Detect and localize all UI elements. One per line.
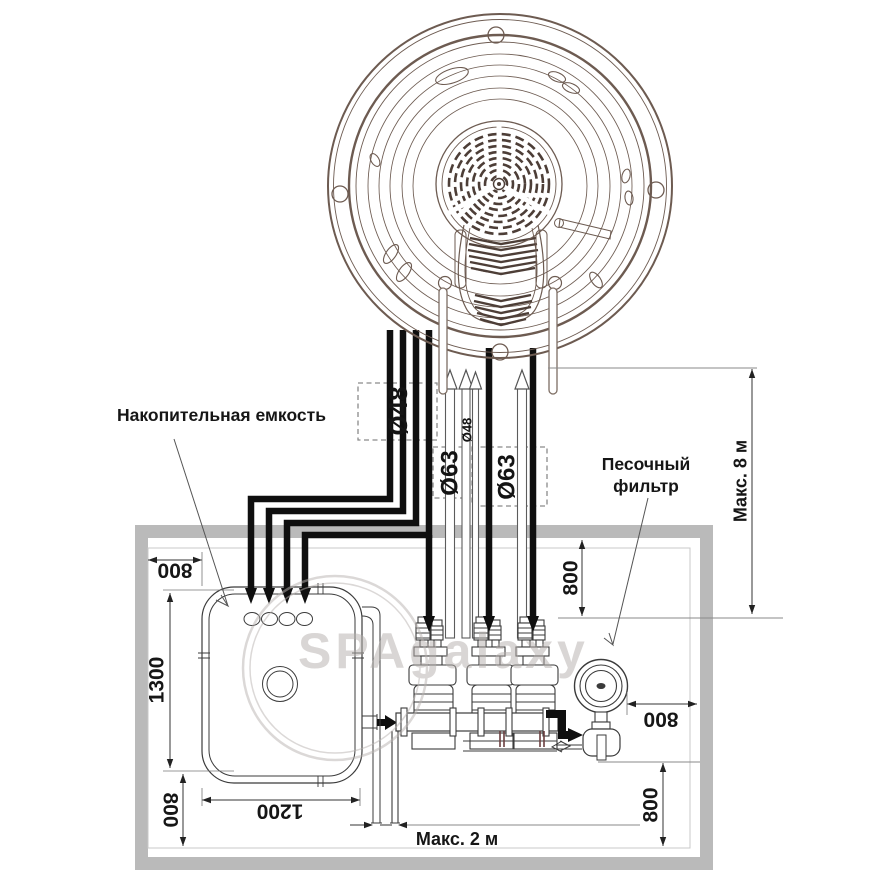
svg-text:1300: 1300 [145,657,168,704]
dim-wall-to-tank: 800 [148,552,202,586]
svg-text:800: 800 [559,560,582,595]
spa-skimmer-arm [559,219,611,239]
dim-max-8m: Макс. 8 м [730,369,755,614]
svg-text:800: 800 [159,792,182,827]
spa-top-view [328,14,672,360]
dim-tank-width: 1200 [202,788,360,823]
sand-filter-label-line1: Песочный [602,454,691,474]
pipe-label-d48: Ø48 [383,386,413,435]
storage-tank-label: Накопительная емкость [117,405,326,425]
leader-arrow [604,633,613,645]
pipe-label-d63-right: Ø63 [493,454,520,499]
pump-drain-pipe [390,731,400,823]
spa-drain-grate [436,121,562,247]
svg-text:1200: 1200 [257,800,304,823]
spa-footwell [439,225,562,325]
dim-filter-to-wall: 800 [627,692,697,731]
pipe-label-d48-small: Ø48 [460,418,475,443]
dim-filter-to-floor: 800 [639,763,666,846]
installation-diagram: SPAgalaxy Ø48 Ø48 Ø63 Ø63 800 1300 [0,0,881,881]
supply-pipes-spa-to-tank [251,330,429,589]
flow-arrow [568,728,583,742]
dim-tank-to-floor: 800 [159,774,187,846]
spa-connector-tubes [439,288,557,394]
sand-filter-label-line2: фильтр [613,476,679,496]
dim-max-2m: Макс. 2 м [350,822,640,849]
svg-text:800: 800 [643,708,678,731]
watermark-text: SPAgalaxy [298,623,589,679]
pipe-label-d63-left: Ø63 [436,450,463,495]
svg-text:800: 800 [639,787,662,822]
dim-ceiling-to-pump: 800 [559,540,585,616]
suction-manifold [396,713,558,731]
max-2m-text: Макс. 2 м [416,829,498,849]
storage-tank [198,583,397,823]
max-8m-text: Макс. 8 м [730,440,750,522]
diagram-svg: SPAgalaxy Ø48 Ø48 Ø63 Ø63 800 1300 [0,0,881,881]
svg-text:800: 800 [157,559,192,582]
